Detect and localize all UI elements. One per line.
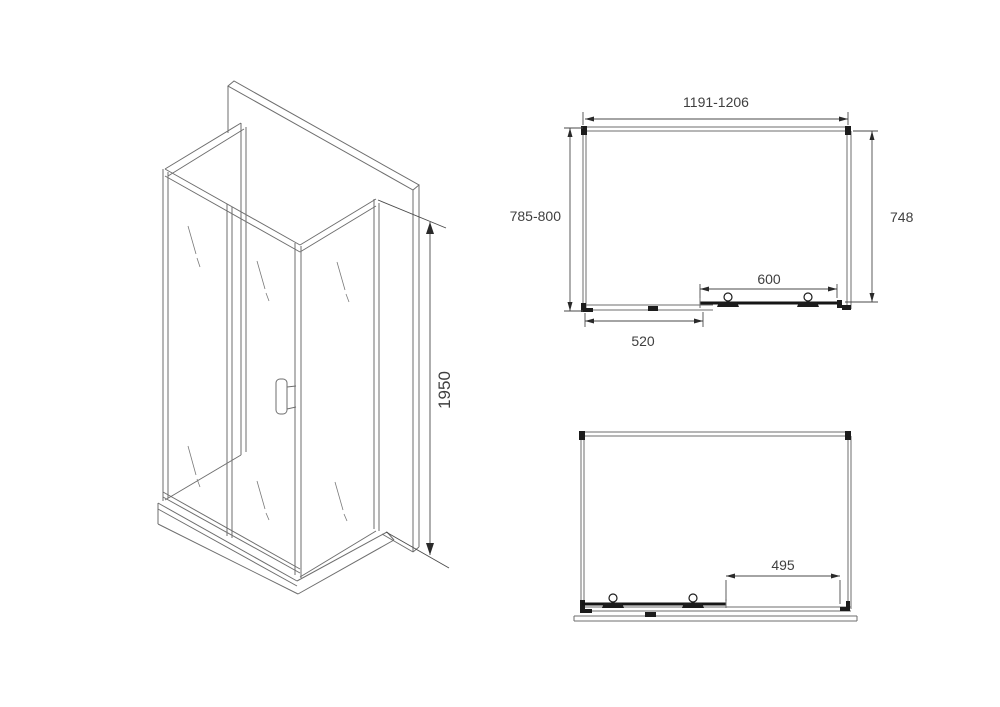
isometric-view: 1950 xyxy=(158,81,454,594)
panel-clip xyxy=(645,612,656,617)
door-roller xyxy=(602,594,624,608)
height-dim-label: 1950 xyxy=(435,371,454,409)
wall-profile-left xyxy=(581,126,587,135)
overall-width-label: 1191-1206 xyxy=(683,94,749,110)
back-wall-panel xyxy=(228,81,419,552)
plan-closed-fixed-panel xyxy=(581,303,713,312)
wall-profile-left xyxy=(579,431,585,440)
fixed-panel-width-label: 520 xyxy=(631,333,655,349)
door-roller xyxy=(682,594,704,608)
overall-depth-label: 785-800 xyxy=(510,208,562,224)
drawing-sheet: 1950 xyxy=(0,0,1000,707)
door-roller xyxy=(717,293,739,307)
glass-marks xyxy=(188,226,349,521)
door-width-label: 600 xyxy=(757,271,781,287)
inner-depth-label: 748 xyxy=(890,209,914,225)
door-roller xyxy=(797,293,819,307)
plan-open-outline xyxy=(579,431,851,609)
door-handle xyxy=(276,379,296,414)
opening-width-label: 495 xyxy=(771,557,795,573)
plan-view-closed: 1191-1206 785-800 748 600 xyxy=(510,94,914,349)
wall-profile-right xyxy=(845,431,851,440)
shower-enclosure-technical-drawing: 1950 xyxy=(0,0,1000,707)
bottom-rails xyxy=(163,455,376,577)
top-frame-rails xyxy=(165,123,376,252)
panel-clip xyxy=(648,306,658,311)
overall-width-dimension: 1191-1206 xyxy=(583,94,848,125)
fixed-panel-width-dimension: 520 xyxy=(585,312,703,349)
overall-depth-dimension: 785-800 xyxy=(510,128,583,311)
plan-closed-outline xyxy=(581,126,851,309)
plan-closed-sliding-door xyxy=(700,293,851,310)
plan-view-open: 495 xyxy=(574,431,857,621)
opening-width-dimension: 495 xyxy=(726,557,840,604)
door-end-bracket xyxy=(837,300,842,308)
plan-open-sliding-door xyxy=(582,594,726,608)
shower-tray xyxy=(158,503,394,594)
height-dimension: 1950 xyxy=(378,200,454,568)
inner-depth-dimension: 748 xyxy=(845,131,914,302)
wall-profile-right xyxy=(845,126,851,135)
door-width-dimension: 600 xyxy=(700,271,837,298)
